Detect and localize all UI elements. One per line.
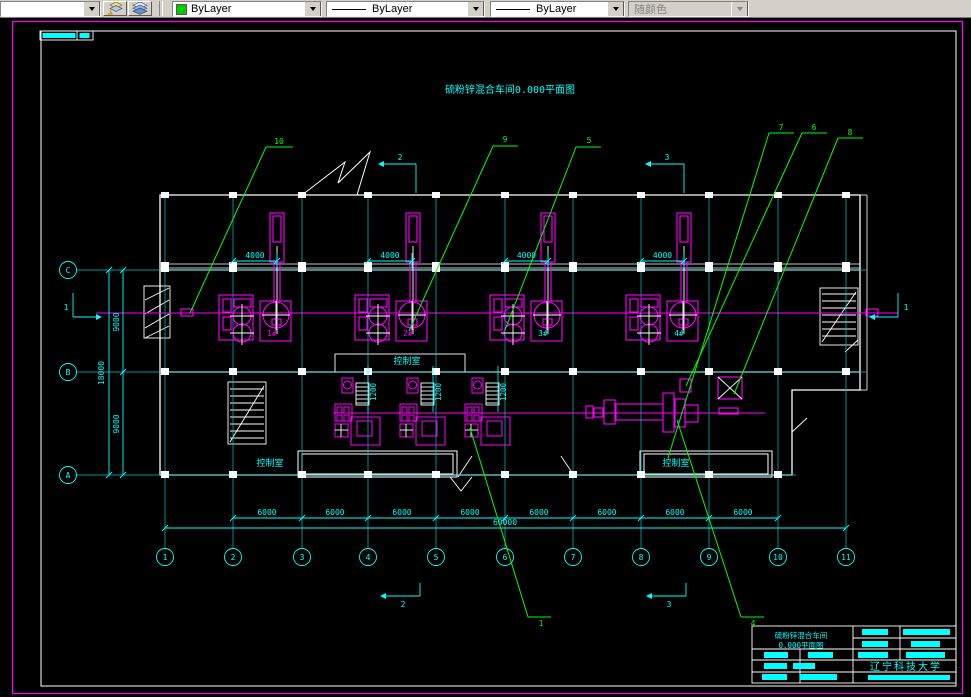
partial-combo[interactable]: [0, 1, 101, 17]
balloon-number: 4: [751, 619, 756, 628]
dim-text: 18000: [97, 361, 106, 385]
color-combo[interactable]: ByLayer: [172, 1, 322, 17]
axis-number: 6: [503, 553, 508, 562]
dim-text: 1200: [369, 382, 378, 401]
drawing-canvas[interactable]: 硫粉锌混合车间0.000平面图 控制室 控制室 控制室 硫粉锌混合车间 0.00…: [0, 0, 971, 697]
dim-text: 6000: [460, 508, 479, 517]
dim-text: 1200: [434, 382, 443, 401]
titleblock-line2: 0.000平面图: [778, 641, 823, 650]
balloon-number: 9: [503, 135, 508, 144]
section-number: 2: [398, 153, 403, 162]
axis-number: 9: [707, 553, 712, 562]
column-mark: [842, 192, 850, 198]
linetype-combo-2[interactable]: ByLayer: [490, 1, 625, 17]
equipment-number: 3#: [538, 329, 548, 338]
dim-text: 9000: [112, 414, 121, 433]
column-mark: [705, 262, 713, 272]
column-mark: [637, 192, 645, 198]
column-mark: [298, 368, 306, 375]
titleblock-line1: 硫粉锌混合车间: [775, 630, 828, 640]
column-mark: [842, 262, 850, 272]
column-mark: [432, 471, 440, 478]
color-swatch: [176, 4, 187, 15]
chevron-down-icon[interactable]: [304, 1, 321, 17]
balloon-number: 6: [812, 123, 817, 132]
column-mark: [774, 368, 782, 375]
column-mark: [501, 192, 509, 198]
column-mark: [705, 471, 713, 478]
chevron-down-icon[interactable]: [467, 1, 484, 17]
plotstyle-combo: 随颜色: [628, 1, 749, 17]
column-mark: [364, 471, 372, 478]
equipment-number: 4#: [674, 329, 684, 338]
dim-text: 60000: [493, 518, 517, 527]
dim-text: 6000: [597, 508, 616, 517]
toolbar: ByLayer ByLayer ByLayer 随颜色: [0, 0, 971, 18]
column-mark: [637, 368, 645, 375]
dim-text: 6000: [529, 508, 548, 517]
linetype-sample-icon: [332, 9, 366, 10]
section-number: 3: [667, 600, 672, 609]
column-mark: [229, 192, 237, 198]
column-mark: [229, 368, 237, 375]
column-mark: [364, 192, 372, 198]
column-mark: [705, 368, 713, 375]
dim-text: 6000: [392, 508, 411, 517]
equipment-number: 2#: [403, 329, 413, 338]
linetype-combo-1-value: ByLayer: [372, 3, 412, 15]
layers-icon: [132, 2, 148, 15]
color-combo-value: ByLayer: [191, 3, 231, 15]
axis-letter: A: [66, 471, 71, 480]
section-number: 1: [904, 303, 909, 312]
axis-number: 8: [639, 553, 644, 562]
column-mark: [298, 262, 306, 272]
column-mark: [161, 368, 169, 375]
axis-number: 1: [163, 553, 168, 562]
column-mark: [298, 471, 306, 478]
axis-number: 5: [434, 553, 439, 562]
make-object-layer-current-button[interactable]: [103, 1, 127, 16]
column-mark: [774, 192, 782, 198]
dim-text: 4000: [245, 251, 264, 260]
column-mark: [637, 471, 645, 478]
canvas-background: [0, 0, 971, 697]
column-mark: [569, 192, 577, 198]
dim-text: 6000: [325, 508, 344, 517]
dim-text: 6000: [665, 508, 684, 517]
column-mark: [229, 471, 237, 478]
column-mark: [705, 192, 713, 198]
balloon-number: 1: [539, 619, 544, 628]
column-mark: [774, 471, 782, 478]
column-mark: [432, 192, 440, 198]
column-mark: [774, 262, 782, 272]
section-number: 3: [665, 153, 670, 162]
balloon-number: 10: [274, 137, 284, 146]
column-mark: [569, 471, 577, 478]
plotstyle-combo-value: 随颜色: [634, 1, 667, 17]
linetype-sample-icon: [496, 9, 530, 10]
chevron-down-icon[interactable]: [83, 1, 100, 17]
drawing-title: 硫粉锌混合车间0.000平面图: [445, 83, 575, 96]
column-mark: [161, 262, 169, 272]
dim-text: 4000: [517, 251, 536, 260]
chevron-down-icon[interactable]: [607, 1, 624, 17]
axis-letter: C: [66, 266, 71, 275]
column-mark: [298, 192, 306, 198]
titleblock-org: 辽宁科技大学: [870, 660, 942, 673]
dim-text: 6000: [733, 508, 752, 517]
axis-number: 11: [841, 553, 851, 562]
column-mark: [161, 192, 169, 198]
dim-text: 4000: [653, 251, 672, 260]
axis-number: 3: [300, 553, 305, 562]
dim-text: 1200: [499, 382, 508, 401]
column-mark: [161, 471, 169, 478]
section-number: 1: [64, 303, 69, 312]
balloon-number: 5: [587, 136, 592, 145]
linetype-combo-2-value: ByLayer: [536, 3, 576, 15]
dim-text: 6000: [257, 508, 276, 517]
equipment-number: 1#: [267, 329, 277, 338]
section-number: 2: [401, 600, 406, 609]
balloon-number: 7: [779, 123, 784, 132]
toolbar-separator: [159, 1, 163, 16]
column-mark: [501, 368, 509, 375]
dim-text: 9000: [112, 312, 121, 331]
balloon-number: 8: [848, 128, 853, 137]
application-window: 硫粉锌混合车间0.000平面图 控制室 控制室 控制室 硫粉锌混合车间 0.00…: [0, 0, 971, 697]
column-mark: [501, 471, 509, 478]
room-label: 控制室: [393, 355, 420, 367]
room-label: 控制室: [256, 457, 283, 469]
axis-number: 7: [571, 553, 576, 562]
column-mark: [569, 368, 577, 375]
axis-number: 10: [773, 553, 783, 562]
room-label: 控制室: [662, 457, 689, 469]
chevron-down-icon: [731, 1, 748, 17]
dim-text: 4000: [380, 251, 399, 260]
axis-number: 4: [366, 553, 371, 562]
layer-previous-button[interactable]: [128, 1, 152, 16]
linetype-combo-1[interactable]: ByLayer: [326, 1, 485, 17]
column-mark: [842, 368, 850, 375]
column-mark: [569, 262, 577, 272]
layer-current-icon: [107, 2, 123, 15]
axis-number: 2: [231, 553, 236, 562]
axis-letter: B: [66, 368, 71, 377]
